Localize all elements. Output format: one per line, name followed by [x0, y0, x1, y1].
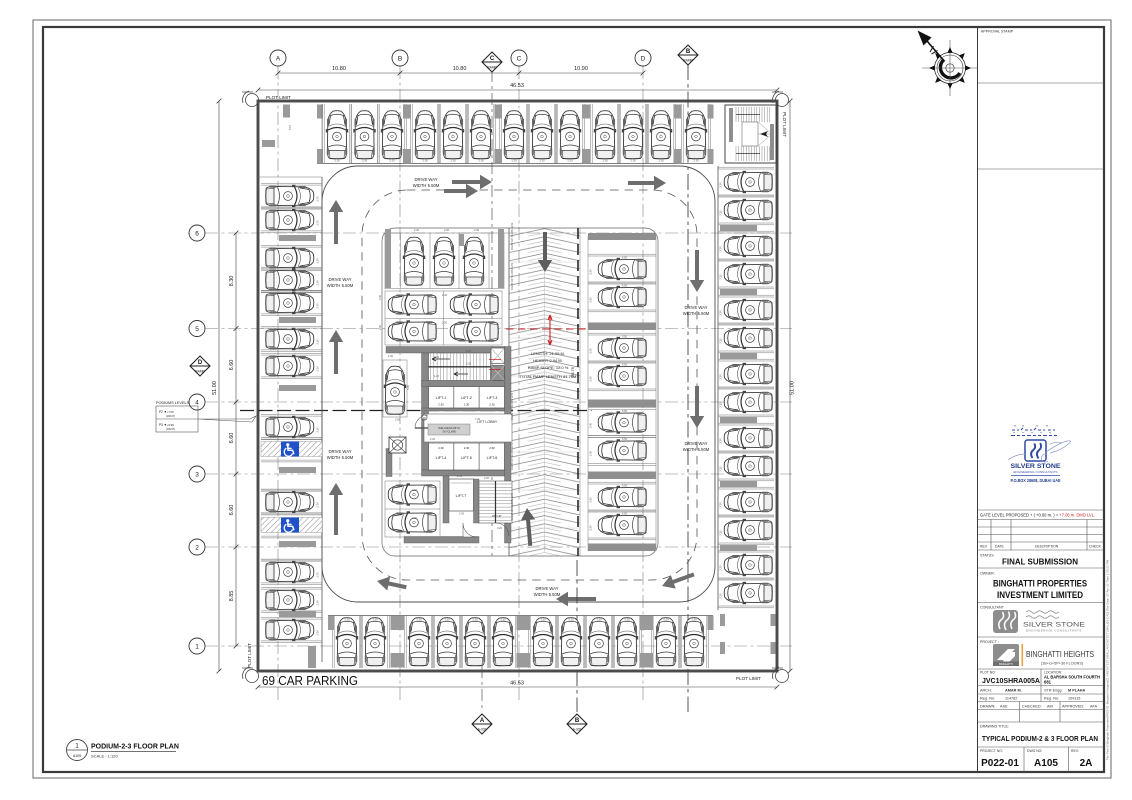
- svg-text:RAMP UP SLOPE 12%: RAMP UP SLOPE 12%: [510, 442, 514, 470]
- svg-text:B: B: [686, 49, 691, 55]
- svg-text:5.50: 5.50: [622, 335, 628, 339]
- svg-text:2.30: 2.30: [389, 159, 395, 163]
- svg-text:TOTAL RAMP LENGTH 84.75M: TOTAL RAMP LENGTH 84.75M: [520, 374, 577, 379]
- svg-text:2.30: 2.30: [719, 274, 723, 280]
- svg-text:2.30: 2.30: [412, 488, 418, 492]
- svg-text:6.60: 6.60: [229, 360, 235, 371]
- svg-text:2.30: 2.30: [589, 297, 593, 303]
- svg-text:DESCRIPTION: DESCRIPTION: [1035, 545, 1059, 549]
- svg-text:2.30: 2.30: [316, 280, 320, 286]
- svg-text:PLOT LIMIT: PLOT LIMIT: [736, 676, 761, 681]
- svg-text:PROJECT NO:: PROJECT NO:: [980, 749, 1003, 753]
- svg-text:RAMP: RAMP: [683, 59, 692, 63]
- svg-text:LENGTH: 21.05 M.: LENGTH: 21.05 M.: [531, 351, 565, 356]
- svg-text:WIDTH 5.50M: WIDTH 5.50M: [327, 283, 354, 288]
- svg-text:PROJECT :: PROJECT :: [980, 640, 999, 644]
- svg-text:M PLAHA: M PLAHA: [1068, 689, 1086, 693]
- svg-text:WIDTH 5.50M: WIDTH 5.50M: [683, 311, 710, 316]
- svg-text:Reg. No:: Reg. No:: [1044, 697, 1059, 701]
- svg-text:LIFT-2: LIFT-2: [461, 396, 472, 400]
- svg-text:DRIVE WAY: DRIVE WAY: [535, 586, 558, 591]
- svg-text:2.30: 2.30: [316, 600, 320, 606]
- svg-text:(109.67): (109.67): [166, 428, 175, 431]
- svg-text:1: 1: [195, 644, 199, 651]
- svg-text:LIFT-5: LIFT-5: [461, 456, 472, 460]
- svg-text:2.30: 2.30: [630, 159, 636, 163]
- svg-text:2.30: 2.30: [567, 159, 573, 163]
- svg-text:Reg. No:: Reg. No:: [980, 697, 995, 701]
- svg-text:3.20: 3.20: [466, 349, 472, 353]
- svg-text:2.30: 2.30: [489, 403, 495, 407]
- svg-text:28.75: 28.75: [570, 366, 575, 377]
- svg-text:2.30: 2.30: [442, 293, 448, 297]
- svg-text:5.50: 5.50: [622, 437, 628, 441]
- svg-text:CHECKED:: CHECKED:: [1022, 705, 1042, 709]
- svg-text:6.60: 6.60: [229, 433, 235, 444]
- svg-text:2.20: 2.20: [466, 362, 472, 366]
- svg-text:CHECK: CHECK: [1089, 545, 1102, 549]
- svg-text:2.30: 2.30: [372, 618, 378, 622]
- svg-text:AFA: AFA: [1090, 705, 1098, 709]
- svg-text:SILVER STONE: SILVER STONE: [1023, 622, 1085, 629]
- svg-text:2.30: 2.30: [442, 321, 448, 325]
- svg-text:2.30: 2.30: [589, 450, 593, 456]
- svg-text:JVC10SHRA005A: JVC10SHRA005A: [982, 678, 1040, 685]
- svg-text:2.30: 2.30: [719, 593, 723, 599]
- svg-text:APPROVED:: APPROVED:: [1062, 705, 1084, 709]
- svg-text:DWG NO:: DWG NO:: [1027, 749, 1042, 753]
- svg-text:5.50: 5.50: [622, 363, 628, 367]
- svg-text:109115: 109115: [1068, 697, 1080, 701]
- svg-text:2.20: 2.20: [484, 476, 490, 480]
- svg-text:2.30: 2.30: [378, 324, 382, 330]
- svg-text:2.30: 2.30: [344, 618, 350, 622]
- svg-text:2.30: 2.30: [362, 159, 368, 163]
- svg-text:2.30: 2.30: [316, 502, 320, 508]
- svg-text:2.30: 2.30: [719, 246, 723, 252]
- svg-text:INVESTMENT LIMITED: INVESTMENT LIMITED: [997, 589, 1083, 600]
- svg-text:2.30: 2.30: [691, 618, 697, 622]
- svg-text:WIDTH 5.50M: WIDTH 5.50M: [413, 183, 440, 188]
- svg-text:2.30: 2.30: [539, 159, 545, 163]
- svg-text:B: B: [398, 56, 402, 63]
- svg-text:RAMP UP SLOPE 12%: RAMP UP SLOPE 12%: [510, 492, 514, 520]
- svg-text:STATUS: STATUS: [980, 554, 994, 558]
- svg-text:SKYCLIMB: SKYCLIMB: [442, 430, 455, 434]
- svg-text:2.30: 2.30: [459, 512, 465, 516]
- svg-text:RAMP UP SLOPE 12%: RAMP UP SLOPE 12%: [510, 222, 514, 250]
- svg-text:2.30: 2.30: [663, 618, 669, 622]
- svg-text:FINAL SUBMISSION: FINAL SUBMISSION: [1002, 558, 1078, 567]
- svg-text:PODIUMS LEVELS: PODIUMS LEVELS: [156, 401, 190, 405]
- svg-text:D: D: [198, 360, 203, 366]
- svg-text:File Path:S:\Binghatti Propert: File Path:S:\Binghatti Properties\P022-0…: [1106, 559, 1110, 760]
- svg-text:5.50: 5.50: [622, 284, 628, 288]
- svg-text:1.20: 1.20: [434, 355, 440, 359]
- svg-text:2.30: 2.30: [589, 376, 593, 382]
- svg-text:BINGHATTI PROPERTIES: BINGHATTI PROPERTIES: [993, 578, 1087, 589]
- svg-text:BINGHATTI HEIGHTS: BINGHATTI HEIGHTS: [1026, 650, 1094, 659]
- svg-text:DRAWING TITLE:: DRAWING TITLE:: [980, 725, 1009, 729]
- svg-text:2.30: 2.30: [450, 159, 456, 163]
- svg-text:10.80: 10.80: [332, 66, 346, 72]
- svg-text:LIFT-4: LIFT-4: [436, 456, 447, 460]
- svg-text:2.30: 2.30: [416, 618, 422, 622]
- svg-text:2.30: 2.30: [444, 618, 450, 622]
- svg-text:REV:: REV:: [1071, 749, 1079, 753]
- svg-text:LIFT LOBBY: LIFT LOBBY: [477, 420, 498, 424]
- svg-text:LIFT-1: LIFT-1: [436, 396, 447, 400]
- svg-text:AMAR M.: AMAR M.: [1005, 689, 1022, 693]
- svg-text:B: B: [575, 718, 580, 724]
- svg-text:C: C: [490, 56, 495, 62]
- svg-text:2.30: 2.30: [334, 159, 340, 163]
- svg-text:LIFT-7: LIFT-7: [456, 494, 467, 498]
- svg-text:5.50: 5.50: [622, 409, 628, 413]
- svg-text:OWNER:: OWNER:: [980, 572, 995, 576]
- svg-text:5.15: 5.15: [288, 124, 292, 130]
- svg-text:2.30: 2.30: [658, 159, 664, 163]
- svg-text:PLOT LIMIT: PLOT LIMIT: [266, 95, 291, 100]
- svg-text:A105: A105: [73, 754, 81, 758]
- svg-text:46.53: 46.53: [510, 83, 524, 89]
- svg-text:114762: 114762: [1005, 697, 1017, 701]
- svg-text:A: A: [480, 718, 485, 724]
- svg-text:RAMP: RAMP: [195, 370, 204, 374]
- svg-text:TYPICAL PODIUM-2 & 3 FLOOR PLA: TYPICAL PODIUM-2 & 3 FLOOR PLAN: [982, 734, 1098, 743]
- svg-text:C: C: [517, 56, 522, 63]
- svg-text:2.30: 2.30: [489, 446, 495, 450]
- svg-text:DRIVE WAY: DRIVE WAY: [414, 177, 437, 182]
- svg-text:HEIGHT 2.94 M.: HEIGHT 2.94 M.: [533, 358, 563, 363]
- svg-text:51.00: 51.00: [212, 381, 218, 395]
- svg-text:DN↑UP: DN↑UP: [492, 514, 501, 518]
- svg-text:ENGINEERING CONSULTANTS: ENGINEERING CONSULTANTS: [1026, 629, 1082, 633]
- svg-text:REV: REV: [980, 545, 988, 549]
- svg-text:2.30: 2.30: [719, 466, 723, 472]
- svg-text:681: 681: [1044, 680, 1052, 685]
- svg-text:P022-01: P022-01: [981, 758, 1019, 769]
- svg-text:69 CAR PARKING: 69 CAR PARKING: [262, 673, 358, 688]
- svg-text:2A: 2A: [1080, 758, 1093, 769]
- svg-text:PLOT NO:: PLOT NO:: [980, 671, 996, 675]
- svg-text:DRIVE WAY: DRIVE WAY: [328, 277, 351, 282]
- svg-text:10.80: 10.80: [453, 66, 467, 72]
- svg-text:2.30: 2.30: [719, 565, 723, 571]
- svg-text:A105: A105: [1034, 758, 1058, 769]
- svg-text:2.30: 2.30: [624, 618, 630, 622]
- svg-text:2.30: 2.30: [568, 618, 574, 622]
- svg-text:2.30: 2.30: [316, 572, 320, 578]
- svg-text:ARCH:: ARCH:: [980, 689, 992, 693]
- svg-text:8.85: 8.85: [229, 591, 235, 602]
- svg-text:2.30: 2.30: [540, 618, 546, 622]
- svg-text:2.30: 2.30: [316, 220, 320, 226]
- svg-text:2.30: 2.30: [378, 294, 382, 300]
- svg-text:2.20: 2.20: [430, 437, 436, 441]
- svg-text:RAMP UP SLOPE 12%: RAMP UP SLOPE 12%: [510, 262, 514, 290]
- svg-text:2.30: 2.30: [589, 497, 593, 503]
- svg-text:2.30: 2.30: [719, 438, 723, 444]
- svg-text:2.30: 2.30: [414, 228, 420, 232]
- svg-text:2.30: 2.30: [719, 210, 723, 216]
- svg-text:LIFT-3: LIFT-3: [487, 396, 498, 400]
- svg-text:2.30: 2.30: [316, 427, 320, 433]
- svg-text:2.30: 2.30: [474, 228, 480, 232]
- svg-text:RAMP: RAMP: [487, 66, 496, 70]
- svg-text:1.00: 1.00: [388, 354, 394, 358]
- svg-text:2.30: 2.30: [316, 196, 320, 202]
- svg-text:A-302: A-302: [478, 728, 487, 732]
- svg-text:RAMP SLOPE: 12.0 %: RAMP SLOPE: 12.0 %: [528, 365, 569, 370]
- svg-text:2.30: 2.30: [316, 630, 320, 636]
- svg-text:2.30: 2.30: [719, 530, 723, 536]
- svg-text:5.00: 5.00: [406, 384, 410, 390]
- svg-text:1.20: 1.20: [434, 374, 440, 378]
- svg-text:PODIUM-2-3 FLOOR PLAN: PODIUM-2-3 FLOOR PLAN: [91, 744, 179, 751]
- svg-text:2.30: 2.30: [412, 516, 418, 520]
- svg-text:46.53: 46.53: [510, 681, 524, 687]
- svg-text:5.50: 5.50: [622, 512, 628, 516]
- svg-text:51.00: 51.00: [790, 381, 796, 395]
- svg-text:2.30: 2.30: [316, 366, 320, 372]
- svg-text:STR Engg:: STR Engg:: [1044, 689, 1063, 693]
- svg-text:2.30: 2.30: [589, 525, 593, 531]
- svg-text:2.00: 2.00: [395, 418, 401, 422]
- svg-text:2.30: 2.30: [589, 348, 593, 354]
- svg-text:RAMP UP SLOPE 12%: RAMP UP SLOPE 12%: [510, 392, 514, 420]
- svg-text:3.20: 3.20: [497, 526, 503, 530]
- svg-text:6: 6: [195, 231, 199, 238]
- svg-text:2.30: 2.30: [438, 446, 444, 450]
- svg-text:5.50: 5.50: [622, 256, 628, 260]
- svg-text:BINGHATTI: BINGHATTI: [999, 662, 1013, 666]
- svg-text:CONSULTANT: CONSULTANT: [980, 606, 1005, 610]
- svg-text:WIDTH 5.50M: WIDTH 5.50M: [327, 455, 354, 460]
- svg-text:2.30: 2.30: [719, 310, 723, 316]
- svg-text:DRAWN:: DRAWN:: [980, 705, 995, 709]
- svg-text:WELLNESS:WITH: WELLNESS:WITH: [438, 426, 460, 430]
- svg-text:2.30: 2.30: [444, 228, 450, 232]
- svg-text:7.40: 7.40: [475, 417, 481, 421]
- svg-text:ASE: ASE: [1000, 705, 1008, 709]
- svg-text:2.30: 2.30: [719, 374, 723, 380]
- svg-text:P2 ▼+7.06: P2 ▼+7.06: [159, 410, 174, 414]
- svg-text:4: 4: [195, 400, 199, 407]
- svg-text:AM: AM: [1047, 705, 1053, 709]
- svg-text:2: 2: [195, 545, 199, 552]
- svg-text:6.60: 6.60: [229, 505, 235, 516]
- svg-text:A-302: A-302: [573, 728, 582, 732]
- svg-text:WIDTH 5.50M: WIDTH 5.50M: [534, 592, 561, 597]
- svg-text:2.30: 2.30: [719, 502, 723, 508]
- svg-text:2.30: 2.30: [719, 182, 723, 188]
- svg-text:2.30: 2.30: [719, 338, 723, 344]
- svg-text:DRIVE WAY: DRIVE WAY: [328, 449, 351, 454]
- svg-text:2.30: 2.30: [422, 159, 428, 163]
- svg-text:2.30: 2.30: [457, 474, 463, 478]
- svg-text:8.30: 8.30: [229, 276, 235, 287]
- svg-text:10.90: 10.90: [574, 66, 588, 72]
- svg-text:(1B+G+5P+30 FLOORS): (1B+G+5P+30 FLOORS): [1041, 662, 1084, 666]
- svg-text:2.30: 2.30: [472, 618, 478, 622]
- svg-text:ENGINEERING CONSULTANTS: ENGINEERING CONSULTANTS: [1014, 470, 1058, 474]
- svg-text:PLOT LIMIT: PLOT LIMIT: [247, 643, 252, 668]
- svg-text:5: 5: [195, 326, 199, 333]
- svg-text:2.30: 2.30: [596, 618, 602, 622]
- svg-text:A: A: [276, 56, 281, 63]
- svg-text:SILVER STONE: SILVER STONE: [1011, 463, 1062, 470]
- svg-text:AL BARSHA SOUTH FOURTH: AL BARSHA SOUTH FOURTH: [1044, 675, 1100, 680]
- svg-text:2.30: 2.30: [589, 269, 593, 275]
- svg-text:2.30: 2.30: [602, 159, 608, 163]
- svg-text:APPROVAL STAMP: APPROVAL STAMP: [981, 30, 1014, 34]
- svg-text:WIDTH 5.50M: WIDTH 5.50M: [683, 447, 710, 452]
- svg-text:LIFT-6: LIFT-6: [487, 456, 498, 460]
- svg-text:GATE LEVEL PROPOSED + ( +0.00: GATE LEVEL PROPOSED + ( +0.00 m. ) = +7.…: [980, 513, 1095, 518]
- svg-text:5.50: 5.50: [622, 484, 628, 488]
- svg-text:D: D: [641, 56, 646, 63]
- svg-text:2.30: 2.30: [693, 159, 699, 163]
- svg-text:P.O.BOX 28608, DUBAI UAE: P.O.BOX 28608, DUBAI UAE: [1011, 478, 1061, 483]
- svg-text:2.30: 2.30: [500, 618, 506, 622]
- svg-text:SCALE - 1:120: SCALE - 1:120: [91, 754, 118, 759]
- svg-text:2.30: 2.30: [478, 159, 484, 163]
- svg-text:2.30: 2.30: [719, 402, 723, 408]
- svg-text:DATE: DATE: [995, 545, 1005, 549]
- svg-text:2.30: 2.30: [316, 258, 320, 264]
- svg-text:(106.67): (106.67): [166, 415, 175, 418]
- svg-text:2.30: 2.30: [316, 339, 320, 345]
- svg-text:PLOT LIMIT: PLOT LIMIT: [782, 112, 787, 137]
- svg-text:2.30: 2.30: [511, 159, 517, 163]
- svg-text:P3 ▼+9.98: P3 ▼+9.98: [159, 423, 174, 427]
- svg-text:2.30: 2.30: [464, 403, 470, 407]
- svg-text:2.30: 2.30: [438, 403, 444, 407]
- svg-text:2.30: 2.30: [316, 303, 320, 309]
- svg-text:3: 3: [195, 472, 199, 479]
- svg-text:2.30: 2.30: [464, 446, 470, 450]
- svg-text:2.30: 2.30: [589, 422, 593, 428]
